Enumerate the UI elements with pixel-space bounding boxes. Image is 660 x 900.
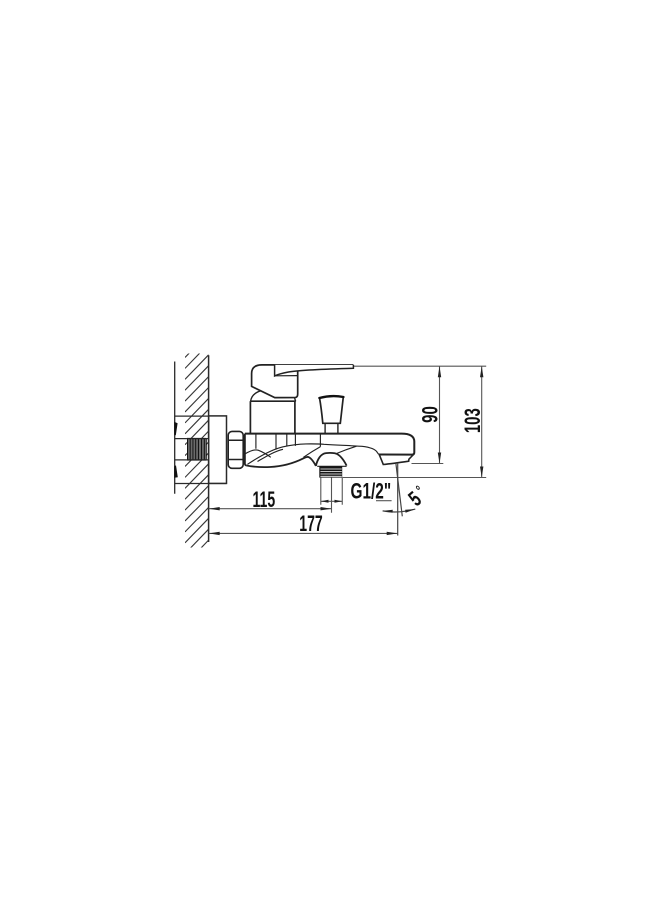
svg-text:90: 90: [418, 406, 443, 423]
svg-text:177: 177: [299, 511, 322, 536]
svg-text:103: 103: [460, 408, 485, 433]
svg-text:115: 115: [252, 487, 275, 512]
